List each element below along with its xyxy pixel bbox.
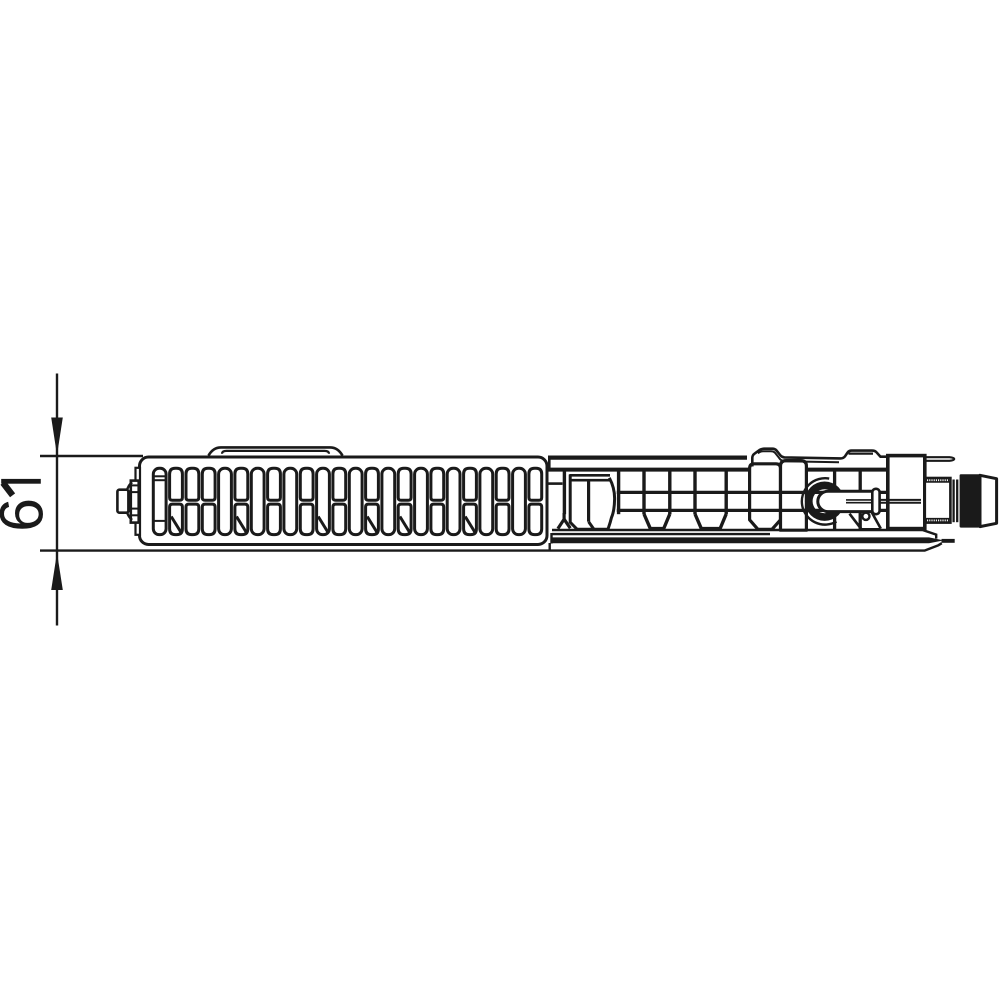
svg-text:6: 6 bbox=[0, 498, 56, 532]
